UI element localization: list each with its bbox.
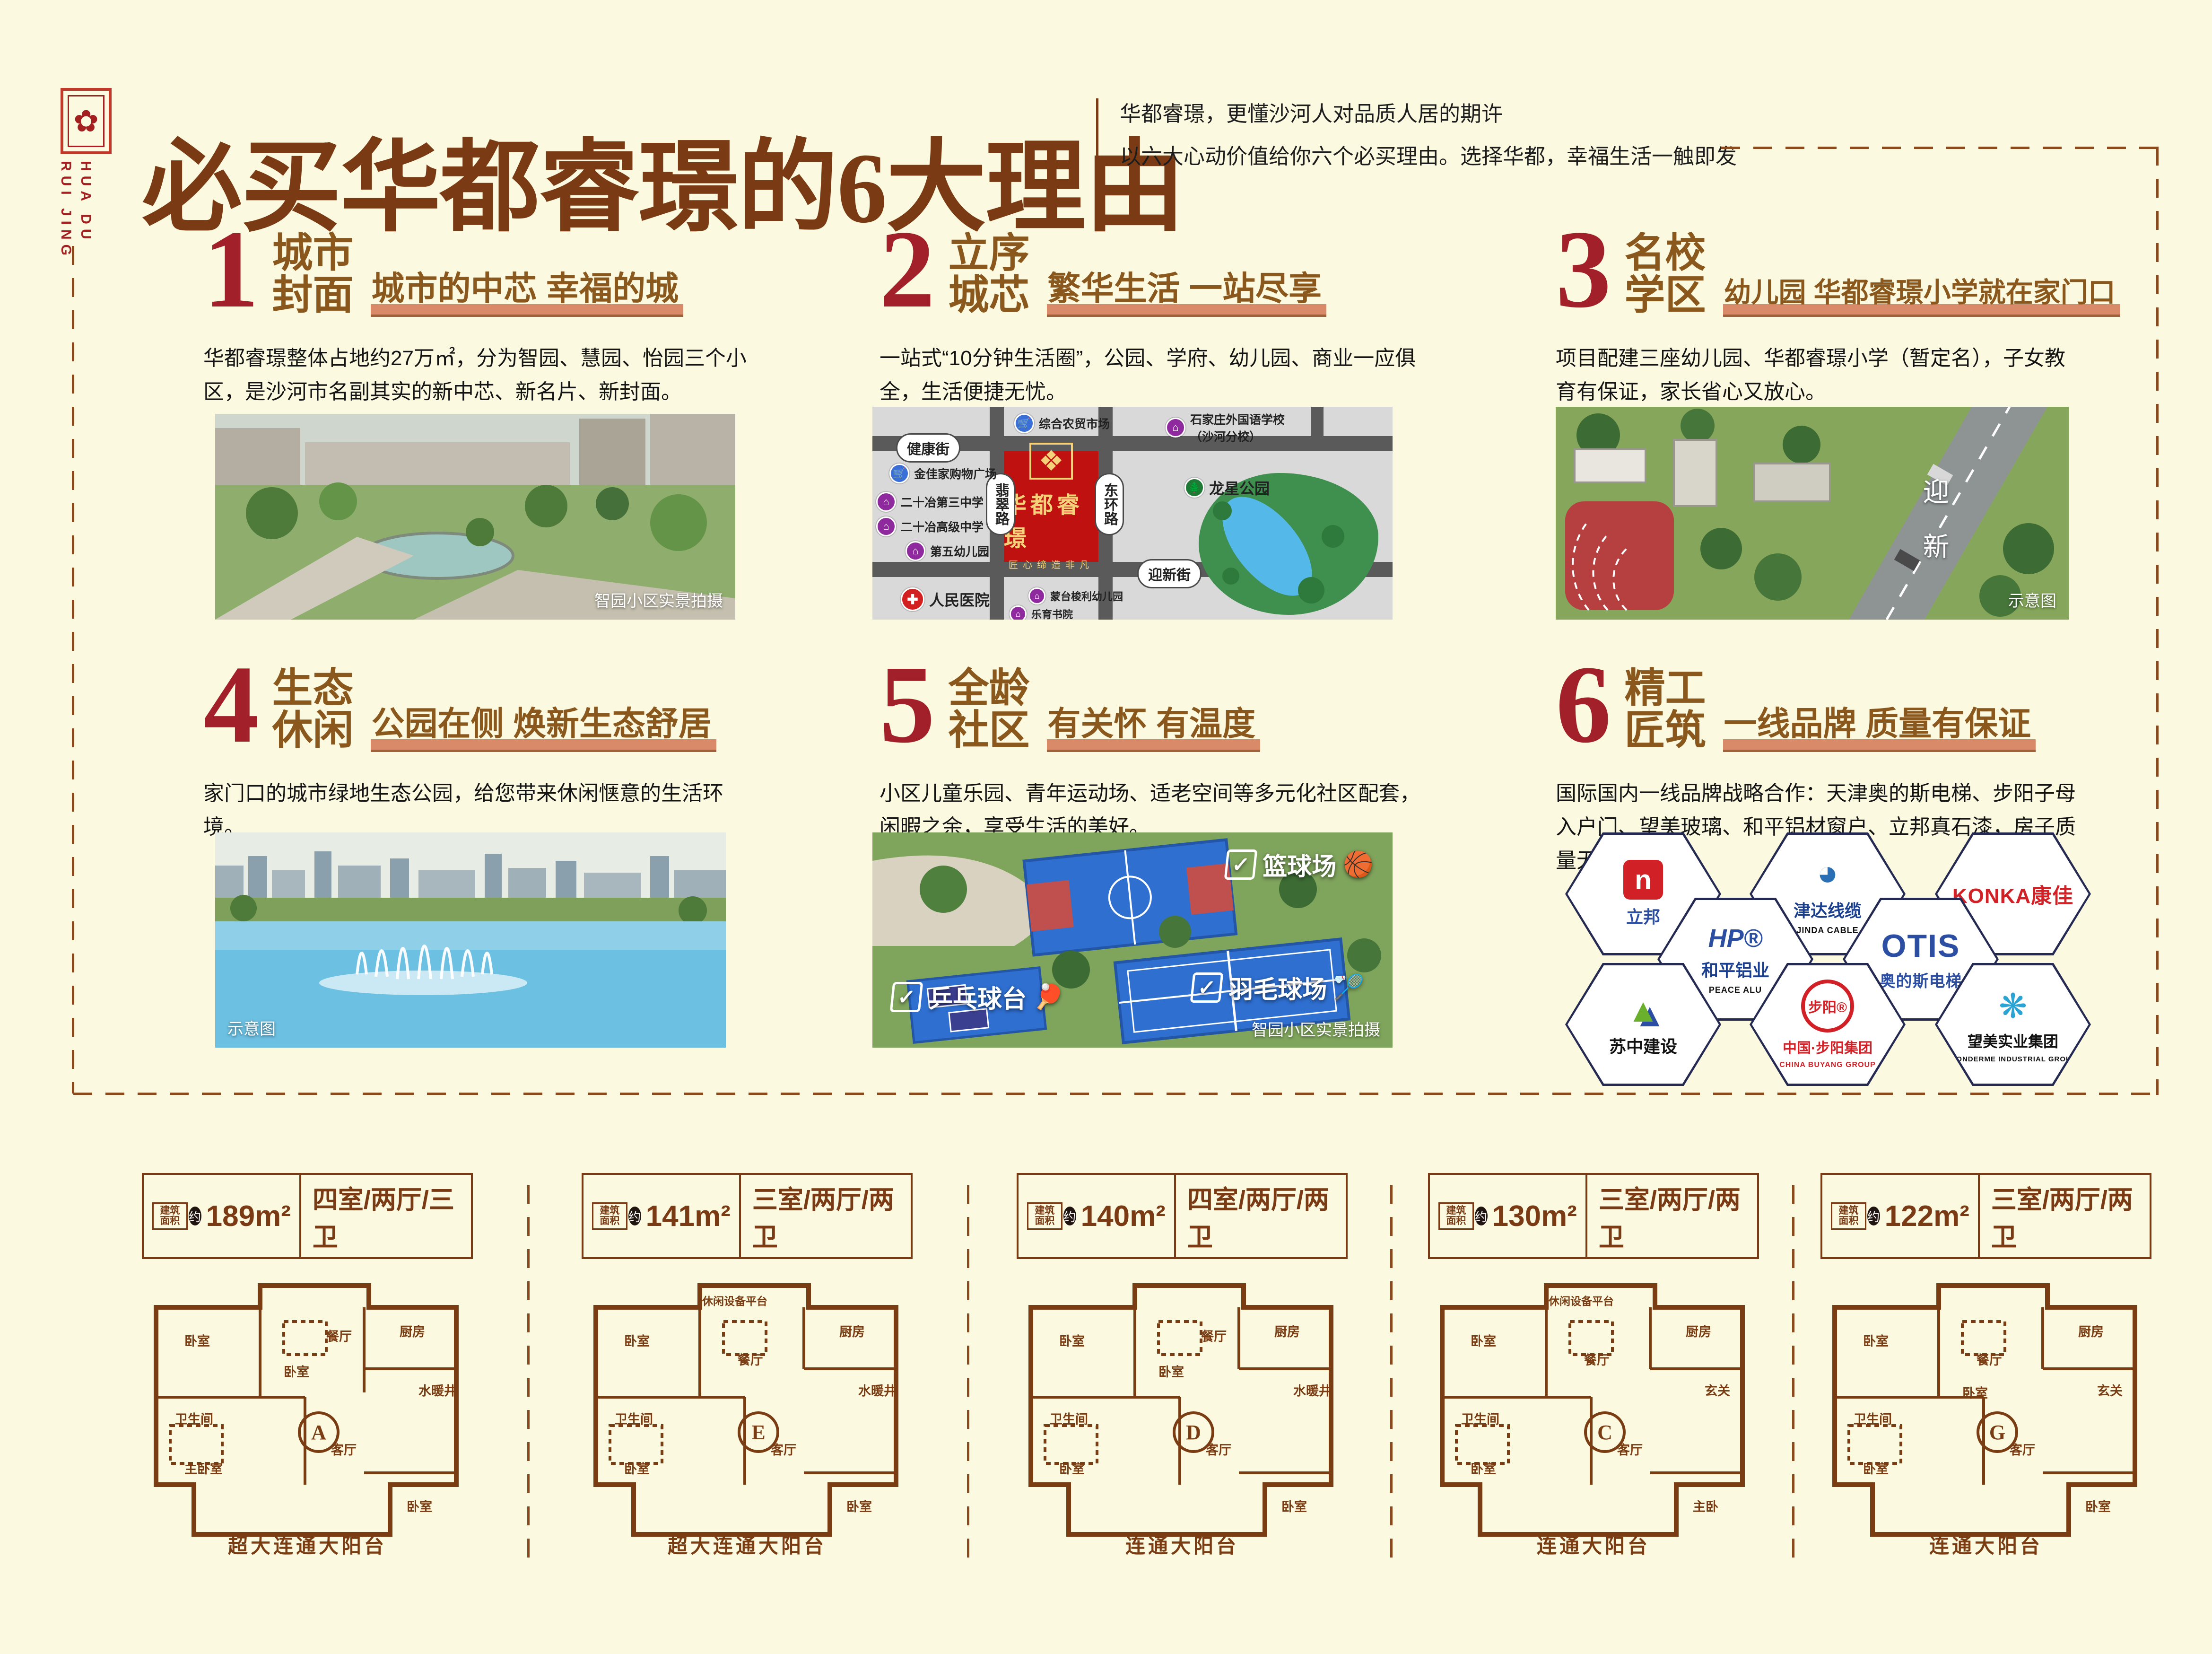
- section-slogan: 幼儿园 华都睿璟小学就在家门口: [1723, 270, 2120, 317]
- section-title-line2: 社区: [949, 709, 1030, 752]
- court-label-basketball: ✓ 篮球场 🏀: [1226, 847, 1374, 882]
- room-label: 厨房: [1686, 1321, 1711, 1340]
- section-number: 6: [1556, 657, 1611, 752]
- plan-label-bar: 建筑面积 约 122m² 三室/两厅/两卫: [1820, 1173, 2151, 1259]
- section-number: 1: [203, 222, 259, 317]
- photo-school-aerial: 迎新 示意图: [1556, 407, 2069, 620]
- brand-wonderme: ❋ 望美实业集团 WONDERME INDUSTRIAL GROUP: [1935, 963, 2091, 1086]
- room-label: 卧室: [624, 1331, 650, 1349]
- school-icon: ⌂: [876, 516, 896, 536]
- kindergarten-icon: ⌂: [1028, 587, 1045, 604]
- room-label: 主卧室: [184, 1459, 223, 1477]
- room-label: 水暖井: [1293, 1381, 1332, 1399]
- park-icon: 🌲: [1184, 478, 1204, 498]
- room-label: 卧室: [1471, 1331, 1496, 1349]
- plan-label-bar: 建筑面积 约 189m² 四室/两厅/三卫: [142, 1173, 473, 1259]
- badminton-icon: 🏸: [1333, 973, 1364, 1002]
- academy-icon: ⌂: [1010, 605, 1027, 620]
- seal-flower-icon: ✿: [68, 95, 105, 147]
- plan-separator: [527, 1185, 530, 1558]
- section-title-line2: 城芯: [949, 274, 1030, 316]
- room-label: 卧室: [1962, 1383, 1988, 1401]
- section-title-line2: 封面: [272, 274, 354, 316]
- wonderme-snowflake-icon: ❋: [1999, 986, 2027, 1026]
- plan-letter: G: [1977, 1411, 2018, 1453]
- brand-buyang: 步阳® 中国·步阳集团 CHINA BUYANG GROUP: [1750, 963, 1906, 1086]
- section-body: 一站式“10分钟生活圈”，公园、学府、幼儿园、商业一应俱全，生活便捷无忧。: [880, 341, 1428, 409]
- room-label: 卫生间: [175, 1409, 213, 1427]
- school-icon: ⌂: [1166, 418, 1185, 438]
- project-name: 华都睿璟: [1004, 486, 1098, 552]
- project-block: ❖ 华都睿璟 匠心缔造非凡: [1004, 451, 1098, 562]
- project-slogan: 匠心缔造非凡: [1009, 557, 1094, 571]
- plan-area: 141m²: [646, 1199, 731, 1233]
- brand-vertical-name: HUA DU RUI JING: [56, 161, 96, 260]
- room-label: 玄关: [1705, 1381, 1730, 1399]
- floor-plan-130: 建筑面积 约 130m² 三室/两厅/两卫 卧室 休闲设备平台 厨房 卫生间 餐…: [1428, 1173, 1759, 1572]
- road-label-donghuan: 东环路: [1095, 473, 1124, 535]
- section-title-line2: 学区: [1625, 274, 1706, 316]
- basketball-icon: 🏀: [1343, 850, 1374, 879]
- room-label: 卧室: [624, 1459, 650, 1477]
- plan-layout: 三室/两厅/两卫: [741, 1175, 911, 1257]
- photo-caption: 智园小区实景拍摄: [1252, 1017, 1380, 1040]
- lake-park-illustration: [215, 832, 726, 1048]
- subtitle-line-1: 华都睿璟，更懂沙河人对品质人居的期许: [1120, 93, 1737, 135]
- photo-lake-park: 示意图: [215, 832, 726, 1048]
- photo-sports-courts: ✓ 篮球场 🏀 ✓ 羽毛球场 🏸 ✓ 乒乓球台 🏓 智园小区实景拍摄: [872, 832, 1393, 1048]
- plan-separator: [1792, 1185, 1794, 1558]
- title-divider: [1096, 98, 1098, 193]
- approx-badge: 约: [1063, 1207, 1076, 1225]
- room-label: 休闲设备平台: [1549, 1292, 1614, 1308]
- room-label: 卫生间: [615, 1409, 653, 1427]
- suzhong-logo-icon: ▲: [1627, 991, 1659, 1029]
- room-label: 卫生间: [1854, 1409, 1892, 1427]
- poi-academy: ⌂ 乐育书院: [1010, 605, 1073, 620]
- plan-drawing: 卧室 卧室 厨房 卫生间 餐厅 水暖井 卧室 客厅 卧室 D 连通大阳台: [1017, 1269, 1348, 1572]
- room-label: 餐厅: [738, 1350, 763, 1368]
- plan-letter: A: [298, 1411, 340, 1453]
- tree-icon: [1322, 525, 1344, 548]
- poi-no5-kindergarten: ⌂ 第五幼儿园: [906, 541, 989, 561]
- plan-area: 122m²: [1885, 1199, 1969, 1233]
- kindergarten-icon: ⌂: [906, 541, 925, 561]
- section-number: 2: [880, 222, 935, 317]
- section-title-line2: 匠筑: [1625, 709, 1706, 752]
- plan-letter: E: [738, 1411, 779, 1453]
- room-label: 卧室: [846, 1496, 872, 1515]
- section-eco-leisure: 4 生态 休闲 公园在侧 焕新生态舒居 家门口的城市绿地生态公园，给您带来休闲惬…: [203, 657, 752, 844]
- plan-label-bar: 建筑面积 约 140m² 四室/两厅/两卫: [1017, 1173, 1348, 1259]
- section-slogan: 有关怀 有温度: [1047, 697, 1260, 752]
- plan-layout: 三室/两厅/两卫: [1980, 1175, 2150, 1257]
- section-city-core: 2 立序 城芯 繁华生活 一站尽享 一站式“10分钟生活圈”，公园、学府、幼儿园…: [880, 222, 1428, 409]
- room-label: 玄关: [2097, 1381, 2123, 1399]
- checkbox-icon: ✓: [1224, 849, 1258, 880]
- school-aerial-illustration: [1556, 407, 2069, 620]
- area-tag: 建筑面积: [1027, 1202, 1062, 1230]
- plan-area: 189m²: [206, 1199, 291, 1233]
- section-slogan: 城市的中芯 幸福的城: [371, 262, 683, 317]
- plan-separator: [967, 1185, 969, 1558]
- court-label-badminton: ✓ 羽毛球场 🏸: [1192, 970, 1364, 1005]
- plan-area: 130m²: [1492, 1199, 1577, 1233]
- section-number: 3: [1556, 222, 1611, 317]
- brand-logos-grid: n 立邦 ◕ 津达线缆 JINDA CABLE KONKA康佳 HP® 和平铝业…: [1551, 832, 2109, 1088]
- section-title-line2: 休闲: [272, 709, 354, 752]
- poi-market: 🛒 综合农贸市场: [1014, 413, 1110, 433]
- approx-badge: 约: [1867, 1207, 1880, 1225]
- plan-label-bar: 建筑面积 约 130m² 三室/两厅/两卫: [1428, 1173, 1759, 1259]
- road-minor: [1311, 407, 1324, 445]
- dashed-border-right: [2156, 147, 2159, 1095]
- balcony-label: 超大连通大阳台: [582, 1530, 913, 1559]
- plan-layout: 四室/两厅/两卫: [1176, 1175, 1346, 1257]
- checkbox-icon: ✓: [1190, 972, 1224, 1003]
- room-label: 主卧: [1693, 1496, 1718, 1515]
- photo-community: 智园小区实景拍摄: [215, 414, 735, 620]
- room-label: 餐厅: [1201, 1326, 1227, 1345]
- section-body: 项目配建三座幼儿园、华都睿璟小学（暂定名），子女教育有保证，家长省心又放心。: [1556, 341, 2076, 409]
- area-tag: 建筑面积: [1438, 1202, 1474, 1230]
- section-number: 5: [880, 657, 935, 752]
- plan-letter: D: [1173, 1411, 1214, 1453]
- road-name-on-photo: 迎新: [1915, 478, 1953, 587]
- section-slogan: 一线品牌 质量有保证: [1723, 697, 2036, 752]
- brand-suzhong: ▲ 苏中建设: [1565, 963, 1721, 1086]
- room-label: 卧室: [1863, 1459, 1889, 1477]
- brand-seal-icon: ✿: [61, 88, 112, 154]
- tree-icon: [1222, 568, 1239, 585]
- dashed-border-bottom: [73, 1093, 2159, 1095]
- cart-icon: 🛒: [889, 464, 909, 483]
- room-label: 餐厅: [1584, 1350, 1610, 1368]
- floor-plan-189: 建筑面积 约 189m² 四室/两厅/三卫 卧室 卧室 厨房 卫生间 餐厅 水暖…: [142, 1173, 473, 1572]
- school-icon: ⌂: [876, 492, 896, 512]
- room-label: 厨房: [1274, 1321, 1300, 1340]
- plan-layout: 四室/两厅/三卫: [301, 1175, 471, 1257]
- room-label: 卧室: [284, 1362, 309, 1380]
- section-school-district: 3 名校 学区 幼儿园 华都睿璟小学就在家门口 项目配建三座幼儿园、华都睿璟小学…: [1556, 222, 2104, 409]
- plan-separator: [1390, 1185, 1393, 1558]
- section-all-age-community: 5 全龄 社区 有关怀 有温度 小区儿童乐园、青年运动场、适老空间等多元化社区配…: [880, 657, 1428, 844]
- nippon-logo-icon: n: [1623, 860, 1663, 900]
- peace-alu-hp-icon: HP®: [1708, 924, 1763, 953]
- room-label: 休闲设备平台: [702, 1292, 767, 1308]
- hospital-cross-icon: ✚: [901, 587, 924, 611]
- balcony-label: 超大连通大阳台: [142, 1530, 473, 1559]
- section-title-line1: 精工: [1625, 667, 1706, 709]
- approx-badge: 约: [189, 1207, 201, 1225]
- balcony-label: 连通大阳台: [1017, 1530, 1348, 1559]
- room-label: 厨房: [2078, 1321, 2104, 1340]
- room-label: 餐厅: [1977, 1350, 2002, 1368]
- area-tag: 建筑面积: [1831, 1202, 1866, 1230]
- poi-senior-school: ⌂ 二十冶高级中学: [876, 516, 984, 536]
- dashed-border-top: [1721, 147, 2159, 149]
- area-tag: 建筑面积: [152, 1202, 188, 1230]
- photo-caption: 示意图: [2008, 588, 2056, 611]
- room-label: 卧室: [1059, 1459, 1085, 1477]
- poi-foreign-school: ⌂ 石家庄外国语学校 （沙河分校）: [1166, 411, 1285, 445]
- room-label: 厨房: [400, 1321, 425, 1340]
- page-subtitle: 华都睿璟，更懂沙河人对品质人居的期许 以六大心动价值给你六个必买理由。选择华都，…: [1120, 93, 1737, 178]
- plan-area: 140m²: [1081, 1199, 1166, 1233]
- section-title-line1: 立序: [949, 232, 1030, 274]
- floor-plan-140: 建筑面积 约 140m² 四室/两厅/两卫 卧室 卧室 厨房 卫生间 餐厅 水暖…: [1017, 1173, 1348, 1572]
- section-title-line1: 生态: [272, 667, 354, 709]
- section-city-cover: 1 城市 封面 城市的中芯 幸福的城 华都睿璟整体占地约27万㎡，分为智园、慧园…: [203, 222, 752, 409]
- room-label: 卧室: [407, 1496, 432, 1515]
- road-label-yingxin: 迎新街: [1137, 559, 1202, 588]
- court-label-pingpong: ✓ 乒乓球台 🏓: [891, 979, 1064, 1015]
- poi-shopping-plaza: 🛒 金佳家购物广场: [889, 464, 997, 483]
- room-label: 卧室: [1863, 1331, 1889, 1349]
- section-slogan: 公园在侧 焕新生态舒居: [371, 697, 716, 752]
- room-label: 卧室: [1158, 1362, 1184, 1380]
- poi-longxing-park: 🌲 龙星公园: [1184, 477, 1270, 499]
- room-label: 卧室: [1471, 1459, 1496, 1477]
- room-label: 卧室: [1059, 1331, 1085, 1349]
- plan-drawing: 卧室 卧室 厨房 卫生间 餐厅 水暖井 主卧室 客厅 卧室 A 超大连通大阳台: [142, 1269, 473, 1572]
- dashed-border-left: [72, 246, 74, 1094]
- floor-plan-122: 建筑面积 约 122m² 三室/两厅/两卫 卧室 厨房 餐厅 卫生间 卧室 玄关…: [1820, 1173, 2151, 1572]
- approx-badge: 约: [628, 1207, 641, 1225]
- room-label: 卧室: [184, 1331, 210, 1349]
- floor-plan-141: 建筑面积 约 141m² 三室/两厅/两卫 卧室 休闲设备平台 厨房 卫生间 餐…: [582, 1173, 913, 1572]
- pingpong-icon: 🏓: [1033, 982, 1064, 1011]
- room-label: 水暖井: [858, 1381, 897, 1399]
- plan-drawing: 卧室 厨房 餐厅 卫生间 卧室 玄关 卧室 客厅 卧室 G 连通大阳台: [1820, 1269, 2151, 1572]
- room-label: 水暖井: [418, 1381, 457, 1399]
- location-map: ❖ 华都睿璟 匠心缔造非凡 健康街 迎新街 翡翠路 东环路 🛒 综合农贸市场 ⌂…: [872, 407, 1393, 620]
- jinda-sphere-icon: ◕: [1817, 852, 1838, 893]
- plan-layout: 三室/两厅/两卫: [1587, 1175, 1757, 1257]
- plan-drawing: 卧室 休闲设备平台 厨房 卫生间 餐厅 水暖井 卧室 客厅 卧室 E 超大连通大…: [582, 1269, 913, 1572]
- plan-label-bar: 建筑面积 约 141m² 三室/两厅/两卫: [582, 1173, 913, 1259]
- balcony-label: 连通大阳台: [1820, 1530, 2151, 1559]
- room-label: 卫生间: [1461, 1409, 1499, 1427]
- section-title-line1: 全龄: [949, 667, 1030, 709]
- room-label: 厨房: [839, 1321, 865, 1340]
- poi-no3-middle-school: ⌂ 二十冶第三中学: [876, 492, 984, 512]
- section-title-line1: 名校: [1625, 232, 1706, 274]
- area-tag: 建筑面积: [592, 1202, 627, 1230]
- subtitle-line-2: 以六大心动价值给你六个必买理由。选择华都，幸福生活一触即发: [1120, 135, 1737, 178]
- plan-letter: C: [1584, 1411, 1626, 1453]
- room-label: 餐厅: [326, 1326, 352, 1345]
- poi-hospital: ✚ 人民医院: [901, 587, 990, 611]
- section-slogan: 繁华生活 一站尽享: [1047, 262, 1326, 317]
- room-label: 卧室: [1281, 1496, 1307, 1515]
- photo-caption: 智园小区实景拍摄: [594, 588, 723, 611]
- road-label-jiankang: 健康街: [896, 433, 960, 463]
- market-icon: 🛒: [1014, 413, 1034, 433]
- approx-badge: 约: [1475, 1207, 1488, 1225]
- photo-caption: 示意图: [227, 1016, 276, 1039]
- tree-icon: [1298, 577, 1324, 604]
- section-title-line1: 城市: [272, 232, 354, 274]
- plan-drawing: 卧室 休闲设备平台 厨房 卫生间 餐厅 玄关 卧室 客厅 主卧 C 连通大阳台: [1428, 1269, 1759, 1572]
- checkbox-icon: ✓: [890, 982, 923, 1012]
- room-label: 卧室: [2085, 1496, 2111, 1515]
- poi-montessori: ⌂ 蒙台梭利幼儿园: [1028, 587, 1123, 604]
- room-label: 卫生间: [1050, 1409, 1088, 1427]
- project-emblem-icon: ❖: [1029, 443, 1073, 480]
- tree-icon: [1213, 501, 1232, 520]
- balcony-label: 连通大阳台: [1428, 1530, 1759, 1559]
- section-body: 华都睿璟整体占地约27万㎡，分为智园、慧园、怡园三个小区，是沙河市名副其实的新中…: [203, 341, 752, 409]
- buyang-ring-icon: 步阳®: [1801, 980, 1854, 1033]
- section-number: 4: [203, 657, 259, 752]
